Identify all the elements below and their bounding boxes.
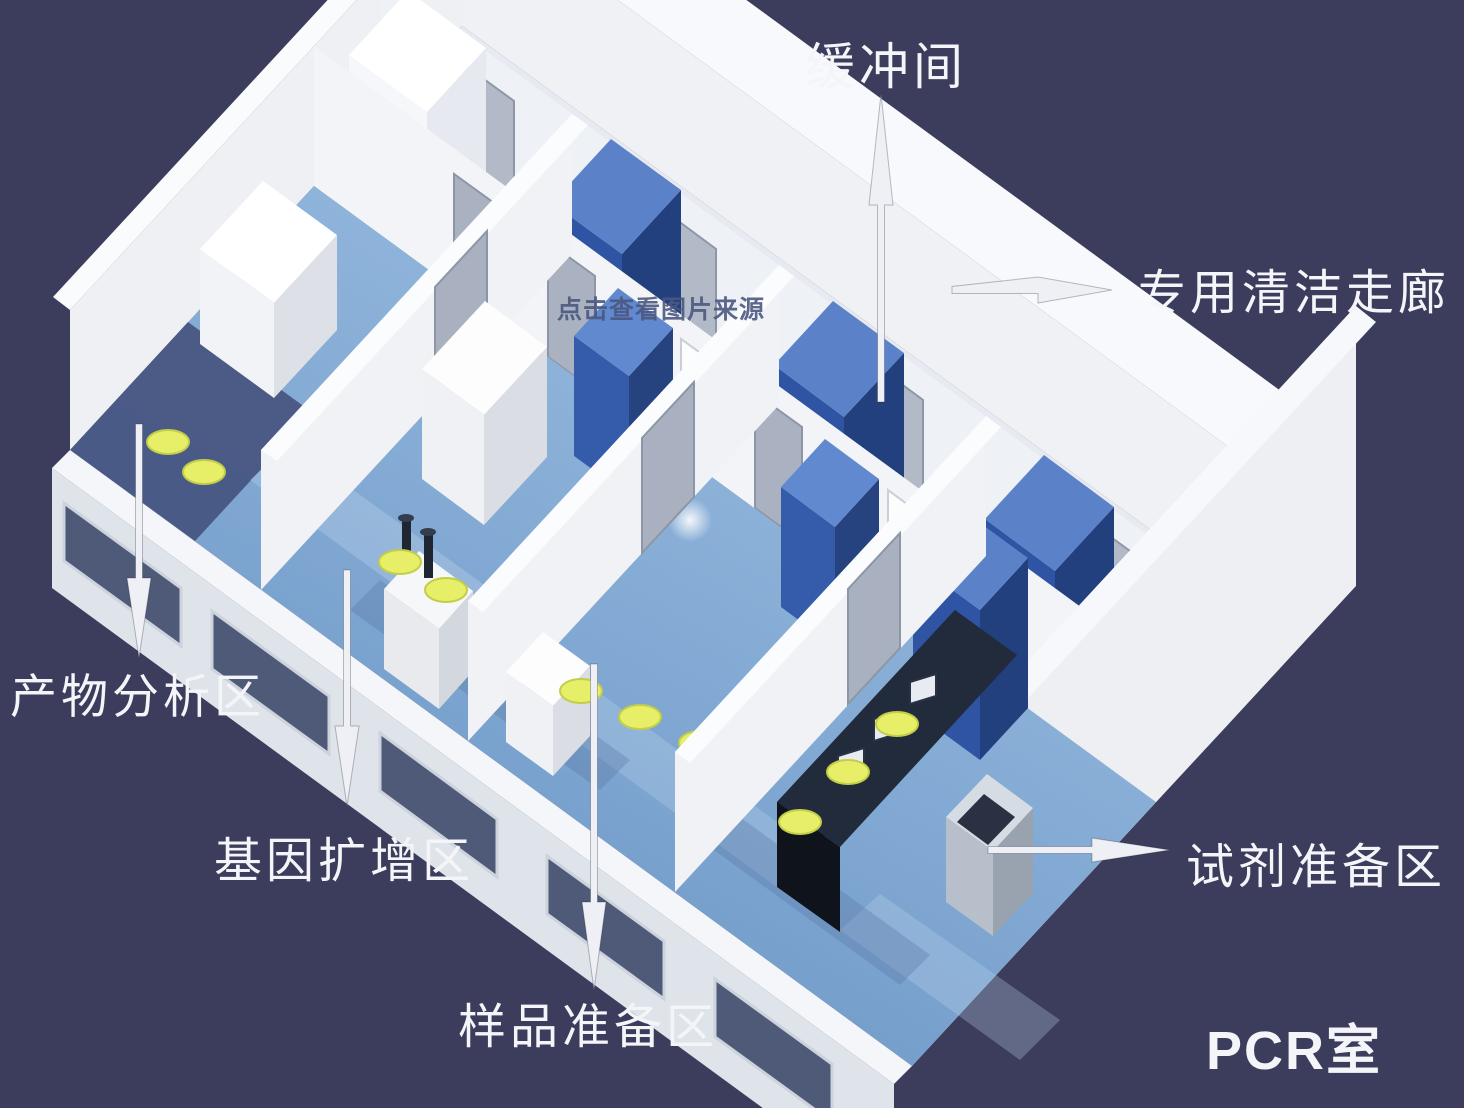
- label-sample-preparation: 样品准备区: [458, 999, 718, 1055]
- isometric-lab-scene: 点击查看图片来源 缓冲间 专用清洁走廊 产物分析区 基因扩增区 样品准备区 试剂…: [0, 0, 1464, 1108]
- label-product-analysis: 产物分析区: [10, 670, 265, 725]
- pcr-lab-diagram: 点击查看图片来源 缓冲间 专用清洁走廊 产物分析区 基因扩增区 样品准备区 试剂…: [0, 0, 1464, 1108]
- lab-stool: [876, 712, 918, 736]
- lab-stool: [147, 430, 189, 454]
- lab-stool: [379, 550, 421, 574]
- label-reagent-preparation: 试剂准备区: [1186, 839, 1446, 895]
- lab-stool: [183, 460, 225, 484]
- label-gene-amplification: 基因扩增区: [214, 833, 474, 889]
- lab-stool: [827, 760, 869, 784]
- lab-stool: [425, 578, 467, 602]
- lab-stool: [779, 810, 821, 834]
- faucet: [424, 532, 433, 578]
- label-clean-corridor: 专用清洁走廊: [1138, 265, 1450, 321]
- watermark-text: 点击查看图片来源: [557, 295, 765, 324]
- lab-stool: [619, 705, 661, 729]
- label-pcr-room: PCR室: [1206, 1021, 1382, 1081]
- label-buffer-room: 缓冲间: [805, 38, 967, 96]
